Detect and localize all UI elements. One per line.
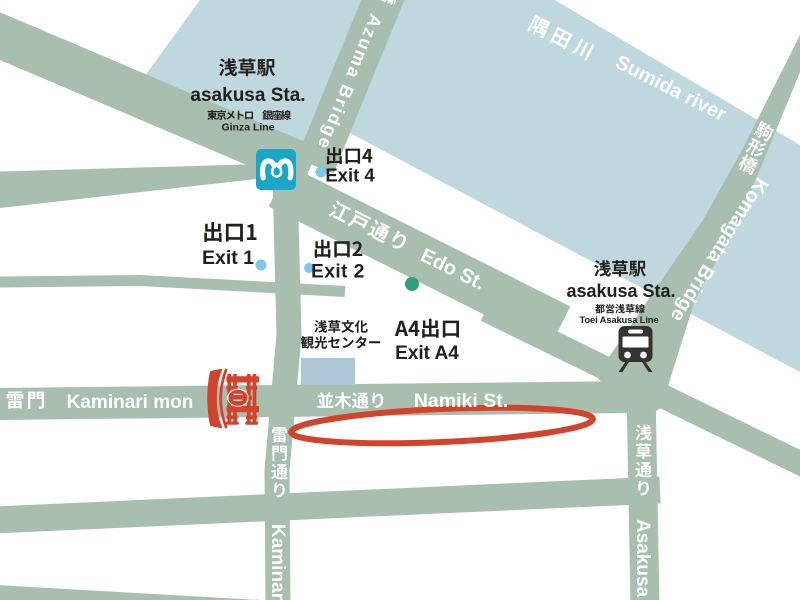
- svg-text:Exit 4: Exit 4: [325, 165, 375, 186]
- svg-text:Ginza Line: Ginza Line: [221, 122, 274, 134]
- svg-text:Kaminarim: Kaminarim: [267, 524, 288, 600]
- svg-text:Asakusa: Asakusa: [632, 519, 653, 598]
- svg-text:Toei Asakusa Line: Toei Asakusa Line: [580, 315, 659, 326]
- svg-text:Exit A4: Exit A4: [395, 343, 459, 364]
- svg-text:Kaminari mon: Kaminari mon: [67, 392, 194, 413]
- svg-text:Namiki St.: Namiki St.: [414, 390, 508, 412]
- svg-text:asakusa Sta.: asakusa Sta.: [566, 281, 675, 301]
- svg-text:Exit 2: Exit 2: [311, 262, 365, 283]
- svg-text:Exit 1: Exit 1: [202, 247, 254, 269]
- svg-text:asakusa Sta.: asakusa Sta.: [190, 85, 305, 106]
